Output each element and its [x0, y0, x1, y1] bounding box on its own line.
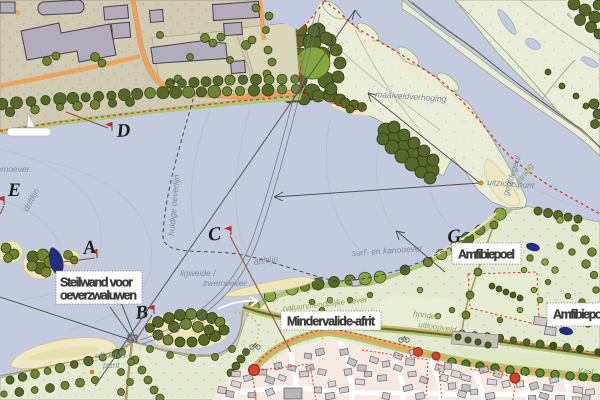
- svg-text:zwemoever: zwemoever: [0, 164, 31, 174]
- svg-text:Amfibiepoel: Amfibiepoel: [553, 308, 600, 322]
- svg-text:oeverzwaluwen: oeverzwaluwen: [60, 289, 137, 303]
- svg-text:ligweide /: ligweide /: [180, 268, 217, 278]
- svg-text:Mindervalide-afrit: Mindervalide-afrit: [287, 315, 376, 329]
- svg-text:D: D: [115, 120, 131, 142]
- svg-text:uitzichts: uitzichts: [95, 350, 126, 360]
- svg-text:Amfibiepoel: Amfibiepoel: [458, 248, 515, 262]
- svg-text:punt: punt: [102, 360, 120, 370]
- svg-text:zwemoever: zwemoever: [202, 278, 248, 288]
- svg-text:E: E: [7, 180, 21, 201]
- svg-text:A: A: [81, 237, 97, 259]
- svg-text:Kast: Kast: [578, 367, 595, 376]
- svg-text:B: B: [133, 302, 149, 324]
- svg-text:Steilwand voor: Steilwand voor: [60, 276, 133, 290]
